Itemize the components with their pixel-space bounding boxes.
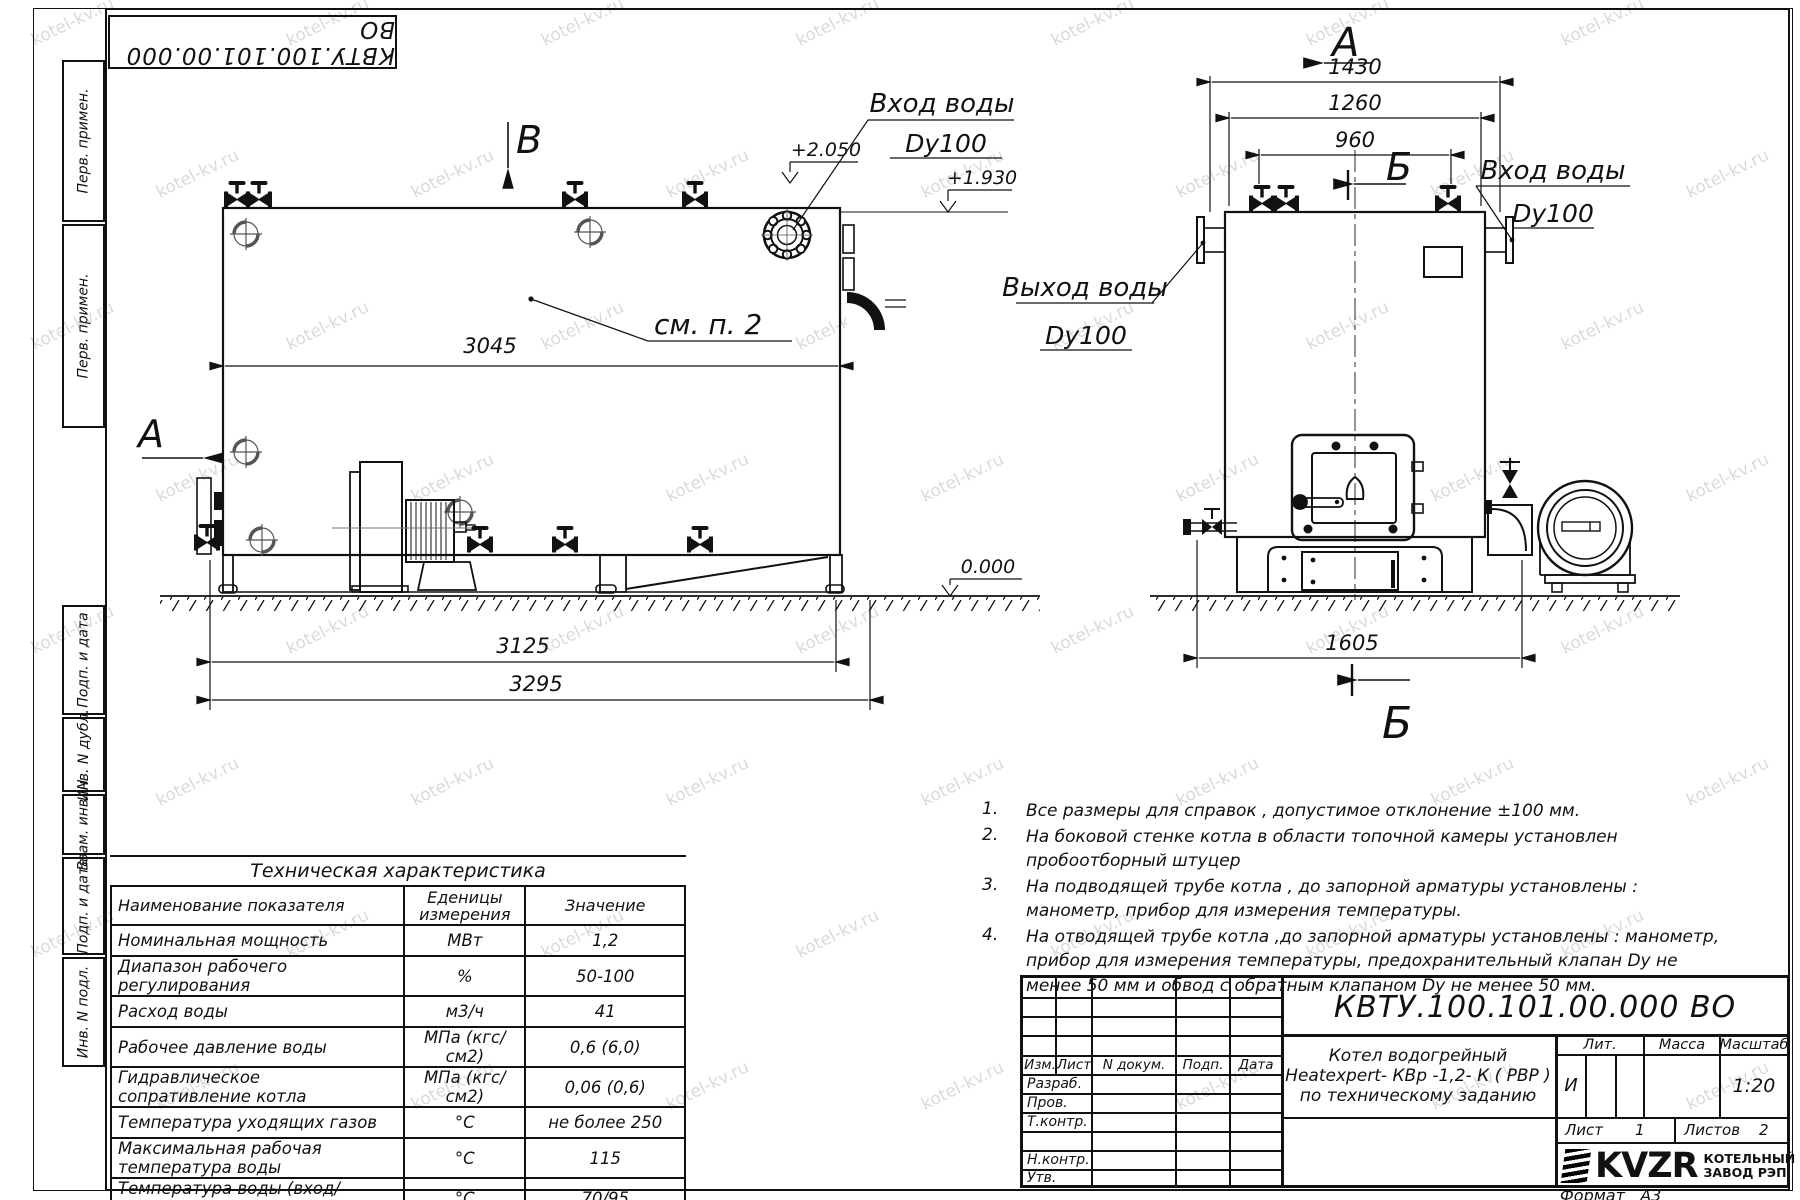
row-utv: Утв.	[1027, 1169, 1091, 1187]
lit-label: Лит.	[1557, 1036, 1643, 1054]
strip-inv-podl: Инв. N подл.	[62, 957, 105, 1067]
table-row: Максимальная рабочая температура воды°С1…	[111, 1138, 685, 1178]
note-3: 3.На подводящей трубе котла , до запорно…	[982, 875, 1742, 924]
mass-label: Масса	[1645, 1036, 1719, 1054]
scale-value: 1:20	[1721, 1056, 1787, 1115]
table-row: Гидравлическое сопративление котлаМПа (к…	[111, 1067, 685, 1107]
col-list: Лист	[1057, 1055, 1091, 1074]
table-row: Рабочее давление водыМПа (кгс/см2)0,6 (6…	[111, 1027, 685, 1067]
sheet-value: 1	[1635, 1117, 1665, 1142]
col-izm: Изм.	[1025, 1055, 1055, 1074]
table-row: Температура воды (вход/выход)°С70/95	[111, 1178, 685, 1200]
sheet-label: Лист	[1565, 1117, 1625, 1142]
format-note: Формат А3	[1560, 1186, 1661, 1200]
table-title: Техническая характеристика	[110, 860, 686, 882]
scale-label: Масштаб	[1721, 1036, 1787, 1054]
note-1: 1.Все размеры для справок , допустимое о…	[982, 799, 1742, 824]
row-nkontr: Н.контр.	[1027, 1150, 1091, 1169]
notes-block: 1.Все размеры для справок , допустимое о…	[982, 799, 1742, 999]
strip-label: Инв. N подл.	[76, 966, 92, 1059]
table-row: Расход водым3/ч41	[111, 996, 685, 1027]
title-block: КВТУ.100.101.00.000 ВО Изм. Лист N докум…	[1020, 975, 1790, 1188]
col-data: Дата	[1231, 1055, 1281, 1074]
strip-podp-data-2: Подп. и дата	[62, 857, 105, 955]
tech-table: Наименование показателя Еденицыизмерения…	[110, 885, 686, 1200]
col-units: Еденицыизмерения	[404, 886, 525, 925]
doc-number: КВТУ.100.101.00.000 ВО	[1285, 984, 1785, 1030]
note-2: 2.На боковой стенке котла в области топо…	[982, 825, 1742, 874]
sheets-value: 2	[1759, 1117, 1783, 1142]
strip-podp-data-1: Подп. и дата	[62, 605, 105, 715]
kvzr-logo: KVZR КОТЕЛЬНЫЙЗАВОД РЭП	[1563, 1146, 1795, 1186]
strip-label: Подп. и дата	[76, 612, 92, 707]
strip-label: Перв. примен.	[76, 273, 92, 378]
table-header-row: Наименование показателя Еденицыизмерения…	[111, 886, 685, 925]
row-blank	[1027, 1131, 1091, 1150]
top-stamp: КВТУ.100.101.00.000 ВО	[108, 15, 397, 69]
row-prov: Пров.	[1027, 1093, 1091, 1112]
product-name: Котел водогрейныйHeatexpert- КВр -1,2- К…	[1283, 1036, 1553, 1115]
top-stamp-number: КВТУ.100.101.00.000 ВО	[110, 16, 395, 68]
row-tkontr: Т.контр.	[1027, 1112, 1091, 1131]
kvzr-logo-text: KVZR	[1595, 1146, 1698, 1186]
drawing-sheet: kotel-kv.rukotel-kv.rukotel-kv.rukotel-k…	[0, 0, 1800, 1200]
col-value: Значение	[525, 886, 685, 925]
strip-label: Подп. и дата	[76, 858, 92, 953]
kvzr-company-name: КОТЕЛЬНЫЙЗАВОД РЭП	[1704, 1152, 1796, 1180]
col-name: Наименование показателя	[111, 886, 404, 925]
table-top-rule	[110, 855, 686, 857]
table-row: Температура уходящих газов°Сне более 250	[111, 1107, 685, 1138]
kvzr-logo-mark	[1561, 1149, 1592, 1183]
col-podp: Подп.	[1177, 1055, 1229, 1074]
table-row: Номинальная мощностьМВт1,2	[111, 925, 685, 956]
strip-perv-primen-2: Перв. примен.	[62, 224, 105, 428]
sheets-label: Листов	[1684, 1117, 1750, 1142]
table-row: Диапазон рабочего регулирования%50-100	[111, 956, 685, 996]
row-razrab: Разраб.	[1027, 1074, 1091, 1093]
strip-vzam-inv: Взам. инв. N	[62, 794, 105, 855]
col-ndokum: N докум.	[1093, 1055, 1175, 1074]
strip-label: Перв. примен.	[76, 88, 92, 193]
strip-perv-primen-1: Перв. примен.	[62, 60, 105, 222]
lit-value: И	[1557, 1056, 1585, 1115]
